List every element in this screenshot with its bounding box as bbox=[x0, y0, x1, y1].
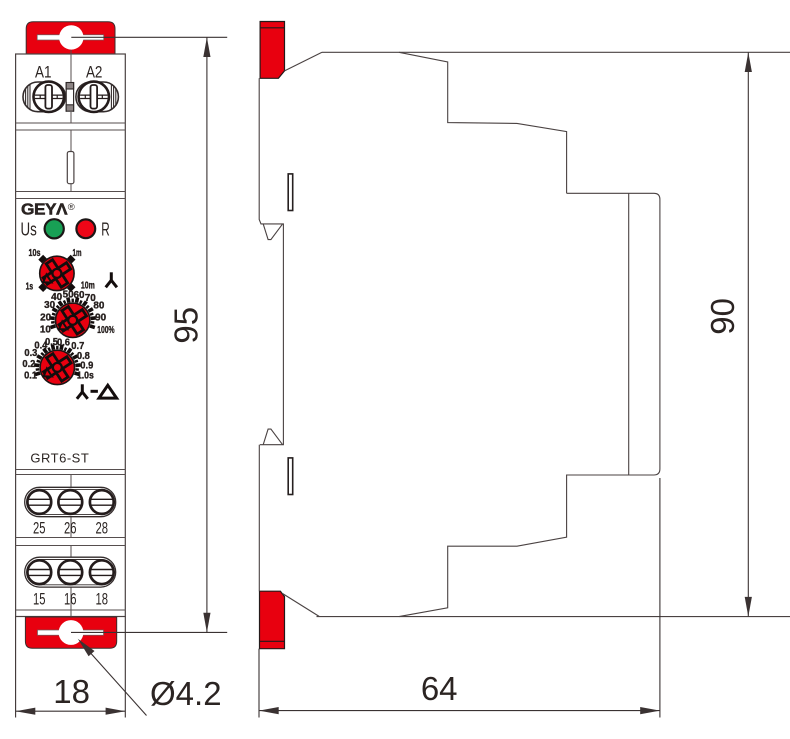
svg-text:60: 60 bbox=[74, 290, 86, 301]
svg-text:18: 18 bbox=[96, 591, 109, 609]
svg-text:A2: A2 bbox=[86, 63, 103, 82]
svg-text:90: 90 bbox=[704, 298, 741, 335]
svg-text:0.2: 0.2 bbox=[22, 359, 36, 370]
svg-text:Ø4.2: Ø4.2 bbox=[150, 675, 222, 712]
svg-text:10s: 10s bbox=[29, 248, 41, 259]
svg-text:1s: 1s bbox=[26, 281, 34, 292]
svg-text:GEYΛ: GEYΛ bbox=[21, 202, 68, 219]
svg-text:GRT6-ST: GRT6-ST bbox=[30, 451, 89, 466]
svg-text:64: 64 bbox=[421, 670, 458, 707]
svg-text:90: 90 bbox=[95, 313, 107, 324]
svg-text:50: 50 bbox=[63, 290, 75, 301]
svg-text:Us: Us bbox=[21, 220, 37, 240]
svg-text:10: 10 bbox=[40, 324, 52, 335]
svg-text:100%: 100% bbox=[97, 325, 115, 336]
svg-text:16: 16 bbox=[64, 591, 77, 609]
svg-text:A1: A1 bbox=[35, 63, 52, 82]
svg-text:20: 20 bbox=[40, 312, 52, 323]
svg-text:0.6: 0.6 bbox=[57, 338, 71, 349]
svg-text:15: 15 bbox=[33, 591, 46, 609]
svg-text:80: 80 bbox=[93, 301, 105, 312]
svg-text:25: 25 bbox=[33, 520, 46, 538]
svg-text:18: 18 bbox=[53, 673, 90, 710]
svg-text:0.1: 0.1 bbox=[24, 371, 38, 382]
svg-text:1m: 1m bbox=[73, 248, 82, 259]
svg-text:95: 95 bbox=[167, 307, 204, 344]
svg-text:40: 40 bbox=[51, 292, 63, 303]
svg-text:R: R bbox=[101, 220, 110, 240]
svg-text:28: 28 bbox=[96, 520, 109, 538]
svg-text:1.0s: 1.0s bbox=[77, 371, 94, 382]
svg-text:26: 26 bbox=[64, 520, 77, 538]
svg-text:®: ® bbox=[68, 202, 75, 213]
